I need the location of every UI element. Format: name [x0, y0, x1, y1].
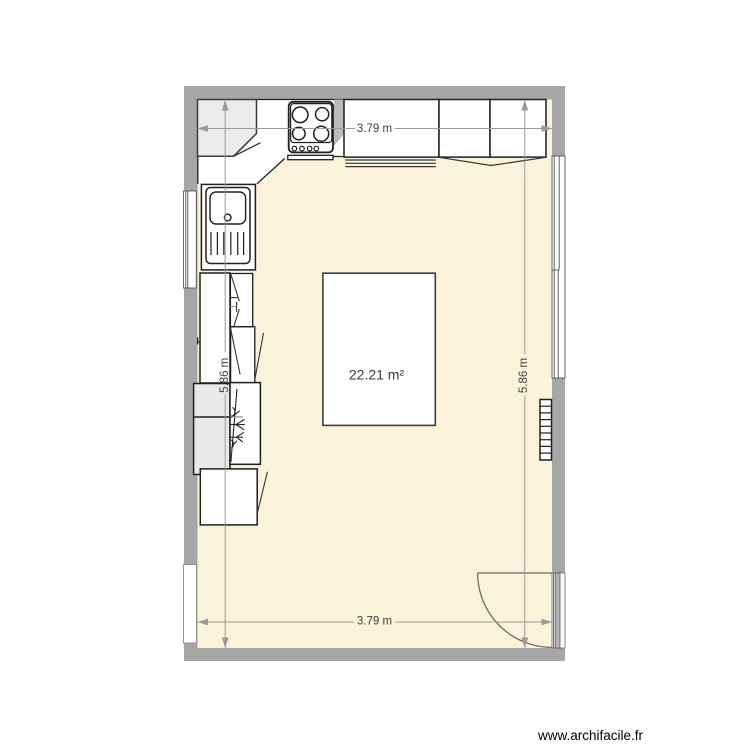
svg-text:22.21 m²: 22.21 m² [349, 367, 405, 383]
svg-text:3.79 m: 3.79 m [357, 123, 392, 135]
svg-text:3.79 m: 3.79 m [357, 616, 392, 628]
svg-text:www.archifacile.fr: www.archifacile.fr [537, 728, 644, 743]
svg-text:5.86 m: 5.86 m [518, 358, 530, 393]
svg-text:5.86 m: 5.86 m [219, 358, 231, 393]
